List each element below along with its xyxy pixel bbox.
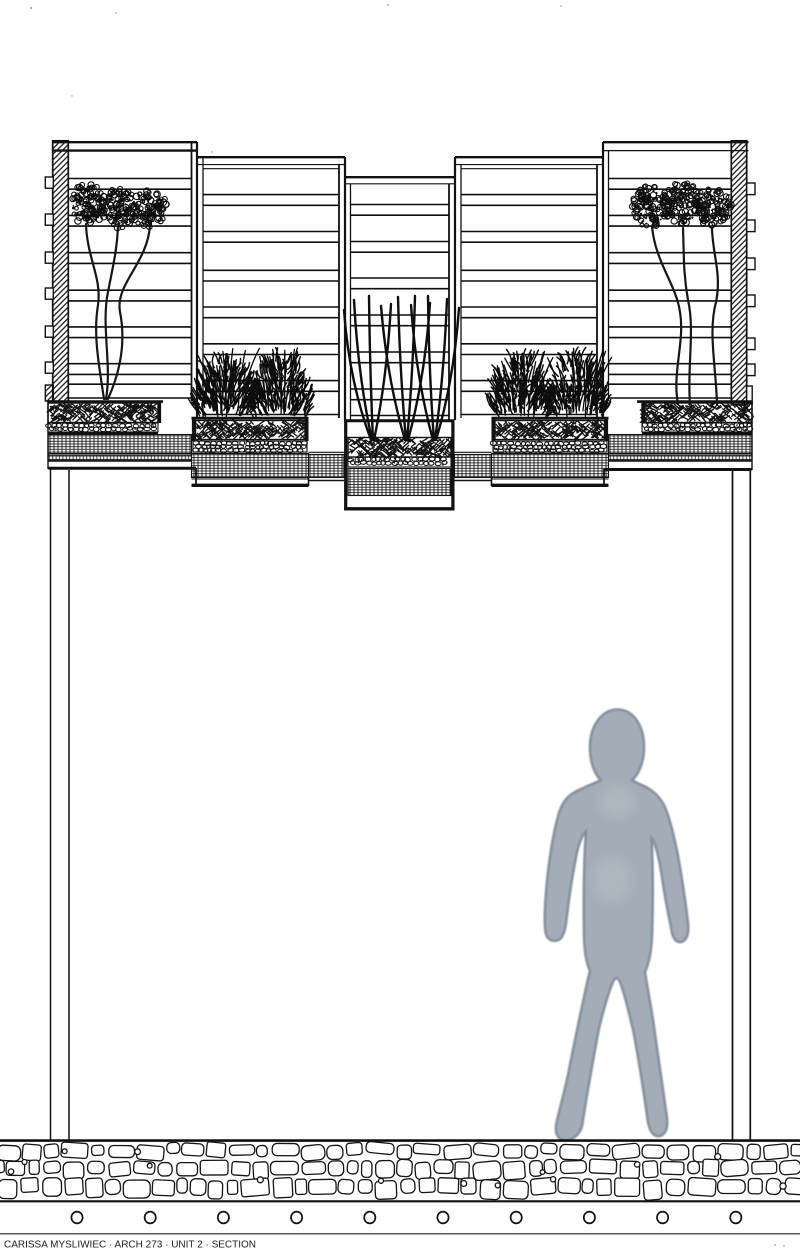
- svg-text:CARISSA MYSLIWIEC · ARCH 273 ·: CARISSA MYSLIWIEC · ARCH 273 · UNIT 2 · …: [4, 1240, 256, 1251]
